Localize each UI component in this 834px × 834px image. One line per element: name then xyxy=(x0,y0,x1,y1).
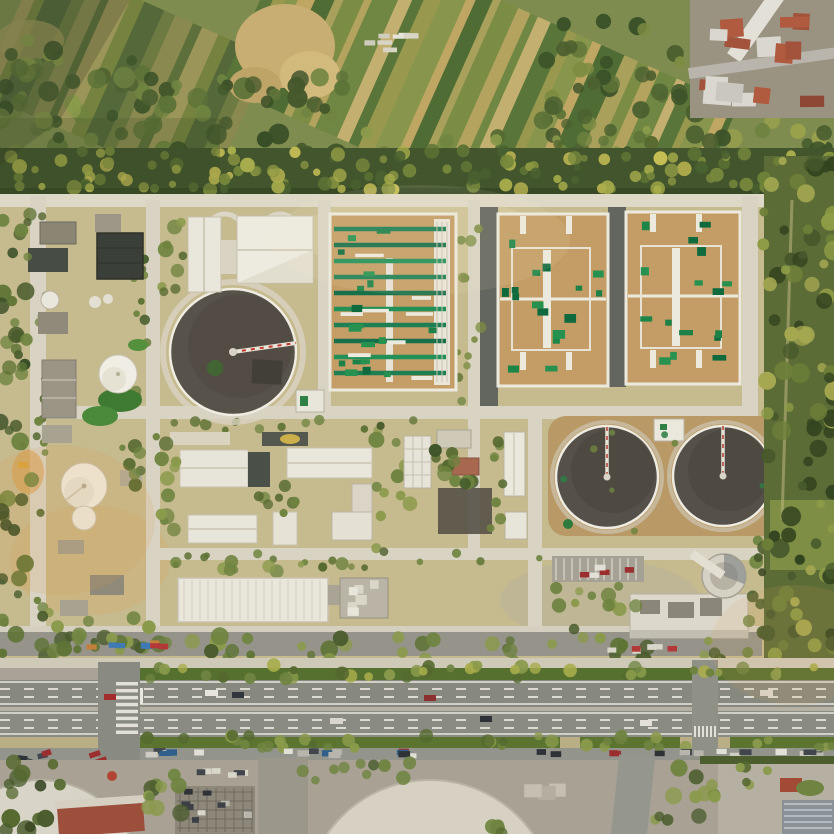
treeline-band-tree xyxy=(442,164,451,173)
clarifier-pad-east-tree xyxy=(609,430,615,436)
treeline-band-tree xyxy=(380,155,388,163)
plant-south-edge-unit xyxy=(109,642,117,647)
farmland-trees-tree xyxy=(261,96,274,109)
left-utility-zone-shape xyxy=(60,600,88,616)
farmland-trees-tree xyxy=(142,89,159,106)
farmland-trees-tree xyxy=(245,76,262,93)
plant-roads-shape xyxy=(608,207,626,387)
boulevard-zebra-bar xyxy=(714,726,716,737)
south-urban-strip-unit xyxy=(236,770,245,775)
boulevard-unit xyxy=(680,750,690,755)
mid-west-buildings-tree xyxy=(225,555,239,569)
aeration-basin-central-unit xyxy=(387,340,406,344)
square-basin-west-unit xyxy=(512,287,519,293)
plant-south-edge-tree xyxy=(426,632,441,647)
mid-west-buildings-tree xyxy=(280,509,288,517)
treeline-band-tree xyxy=(240,158,255,173)
east-tree-strip-tree xyxy=(761,407,774,420)
treeline-band-tree xyxy=(468,171,482,185)
boulevard-tree xyxy=(240,740,249,749)
east-tree-strip-tree xyxy=(784,327,799,342)
treeline-band-tree xyxy=(621,152,631,162)
left-utility-zone-shape xyxy=(102,367,126,391)
plant-road-trees-tree xyxy=(464,352,472,360)
boulevard-tree xyxy=(513,674,522,683)
square-basin-east-unit xyxy=(642,222,650,231)
farmland-trees-tree xyxy=(561,119,572,130)
center-cluster-shape xyxy=(438,488,492,534)
boulevard-tree xyxy=(227,730,238,741)
plant-road-trees-tree xyxy=(457,397,466,406)
farmland-trees-tree xyxy=(573,83,584,94)
mid-west-buildings-tree xyxy=(403,496,418,511)
plant-south-edge-tree xyxy=(333,631,349,647)
south-urban-strip-tree xyxy=(54,779,66,791)
center-cluster-tree xyxy=(491,497,501,507)
treeline-band-tree xyxy=(668,177,676,185)
boulevard-tree xyxy=(764,736,773,745)
farmland-trees-tree xyxy=(643,126,652,135)
treeline-band-tree xyxy=(668,152,678,162)
plant-roads-shape xyxy=(528,418,542,632)
south-urban-strip-tree xyxy=(662,814,674,826)
south-urban-strip-tree xyxy=(311,776,320,785)
plant-south-edge-tree xyxy=(392,631,404,643)
plant-south-edge-unit xyxy=(647,644,657,650)
east-tree-strip-tree xyxy=(761,449,775,463)
east-tree-strip-tree xyxy=(759,208,768,217)
farmland-trees-tree xyxy=(87,70,106,89)
south-urban-strip-unit xyxy=(524,784,542,797)
farmland-trees-tree xyxy=(218,84,229,95)
left-utility-zone-shape xyxy=(40,222,76,244)
treeline-band-tree xyxy=(721,150,730,159)
boulevard-tree xyxy=(534,732,542,740)
mid-west-buildings-tree xyxy=(298,561,304,567)
left-utility-zone-tree xyxy=(17,362,27,372)
southeast-offices-unit xyxy=(625,567,634,573)
farmland-trees-tree xyxy=(651,83,668,100)
southeast-offices-tree xyxy=(629,599,642,612)
boulevard-unit xyxy=(739,749,751,755)
farmland-greenhouses-unit xyxy=(378,34,389,39)
treeline-band-tree xyxy=(313,169,320,176)
farmland-trees-tree xyxy=(582,63,594,75)
treeline-band-tree xyxy=(394,151,405,162)
southeast-offices-unit xyxy=(595,565,606,571)
farmland-trees-tree xyxy=(564,40,577,53)
plant-road-trees-tree xyxy=(463,362,471,370)
mid-west-buildings-tree xyxy=(262,560,275,573)
south-urban-strip-tree xyxy=(689,790,702,803)
south-urban-strip-shape xyxy=(107,771,117,781)
east-tree-strip-tree xyxy=(781,506,801,526)
plant-road-trees-tree xyxy=(200,553,208,561)
south-urban-strip-tree xyxy=(48,759,59,770)
boulevard-tree xyxy=(499,738,508,747)
boulevard-zebra-bar xyxy=(702,726,704,737)
south-urban-strip-tree xyxy=(356,759,366,769)
aeration-basin-central-unit xyxy=(345,369,357,376)
left-utility-zone-shape xyxy=(116,372,120,376)
farmland-trees-tree xyxy=(113,67,135,89)
south-urban-strip-tree xyxy=(378,759,391,772)
south-urban-strip-unit xyxy=(244,812,252,818)
east-tree-strip-tree xyxy=(798,481,807,490)
east-tree-strip-tree xyxy=(761,538,773,550)
plant-south-edge-tree xyxy=(73,645,81,653)
mid-west-buildings-tree xyxy=(392,438,401,447)
east-tree-strip-tree xyxy=(803,457,813,467)
left-utility-zone-tree xyxy=(17,282,35,300)
east-tree-strip-tree xyxy=(769,314,781,326)
boulevard-tree xyxy=(309,740,317,748)
village-top-right-unit xyxy=(785,41,801,59)
treeline-band-tree xyxy=(220,185,228,193)
treeline-band-tree xyxy=(318,177,332,191)
south-urban-strip-tree xyxy=(329,764,339,774)
farmland-trees-tree xyxy=(577,132,592,147)
boulevard-unit xyxy=(146,752,158,758)
east-tree-strip-tree xyxy=(774,362,793,381)
square-basin-west-unit xyxy=(537,308,548,315)
mid-west-buildings-tree xyxy=(361,564,368,571)
plant-road-trees-tree xyxy=(34,597,41,604)
farmland-trees-tree xyxy=(632,101,649,118)
mid-west-buildings-tree xyxy=(159,436,173,450)
south-urban-strip-tree xyxy=(689,769,704,784)
treeline-band-tree xyxy=(331,147,345,161)
square-basin-west-shape xyxy=(520,352,526,370)
mid-west-buildings-shape xyxy=(280,434,300,444)
left-utility-zone-shape xyxy=(38,312,68,334)
left-utility-zone-shape xyxy=(128,339,148,351)
plant-south-edge-tree xyxy=(211,627,229,645)
left-utility-zone-shape xyxy=(95,214,121,232)
plant-south-edge-tree xyxy=(185,634,200,649)
village-top-right-unit xyxy=(800,96,824,108)
north-buildings-tree xyxy=(159,287,168,296)
left-utility-zone-tree xyxy=(7,248,18,259)
farmland-trees-tree xyxy=(311,68,329,86)
south-urban-strip-unit xyxy=(203,791,212,796)
boulevard-tree xyxy=(580,739,593,752)
treeline-band-tree xyxy=(457,144,470,157)
left-utility-zone-tree xyxy=(14,350,23,359)
boulevard-tree xyxy=(257,742,267,752)
farmland-trees-tree xyxy=(596,14,611,29)
center-cluster-tree xyxy=(493,436,504,447)
south-urban-strip-tree xyxy=(155,781,167,793)
mid-west-buildings-tree xyxy=(348,563,355,570)
square-basin-west-unit xyxy=(593,271,604,278)
boulevard-unit xyxy=(804,750,817,756)
center-cluster-tree xyxy=(449,475,461,487)
aeration-basin-central-unit xyxy=(406,312,433,316)
farmland-trees-tree xyxy=(336,71,348,83)
farmland-trees-tree xyxy=(600,56,613,69)
mid-west-buildings-tree xyxy=(167,523,181,537)
east-tree-strip-tree xyxy=(797,184,815,202)
boulevard-zebra-bar xyxy=(116,696,138,699)
treeline-band-tree xyxy=(571,176,579,184)
plant-south-edge-tree xyxy=(225,644,239,658)
plant-south-edge-tree xyxy=(34,638,49,653)
square-basin-east-unit xyxy=(713,288,724,295)
left-utility-zone-tree xyxy=(83,616,94,627)
clarifier-pad-east-shape xyxy=(688,429,770,511)
plant-road-trees-tree xyxy=(409,416,417,424)
left-utility-zone-tree xyxy=(7,296,17,306)
treeline-band-tree xyxy=(568,151,582,165)
boulevard-tree xyxy=(342,734,355,747)
boulevard-tree xyxy=(267,658,281,672)
aeration-basin-central-unit xyxy=(379,337,386,344)
treeline-band-tree xyxy=(267,165,280,178)
south-urban-strip-tree xyxy=(171,778,187,794)
center-cluster-tree xyxy=(448,455,461,468)
farmland-trees-tree xyxy=(816,125,832,141)
village-top-right-unit xyxy=(753,87,771,105)
aeration-basin-central-unit xyxy=(429,328,438,334)
boulevard-tree xyxy=(335,667,349,681)
boulevard-shape xyxy=(140,688,143,704)
boulevard-zebra-bar xyxy=(116,682,138,685)
farmland-trees-tree xyxy=(577,109,592,124)
plant-road-trees-tree xyxy=(190,416,201,427)
clarifier-pad-east xyxy=(548,416,780,536)
mid-west-buildings-tree xyxy=(391,469,405,483)
treeline-band-tree xyxy=(403,164,417,178)
treeline-band-tree xyxy=(647,172,655,180)
plant-south-edge-tree xyxy=(297,642,306,651)
south-urban-strip-unit xyxy=(218,802,226,807)
treeline-band-tree xyxy=(424,144,439,159)
left-utility-zone-tree xyxy=(20,333,32,345)
square-basin-west-unit xyxy=(532,302,544,309)
farmland-trees-tree xyxy=(675,56,686,67)
boulevard-tree xyxy=(178,664,188,674)
mid-west-buildings-tree xyxy=(380,547,389,556)
treeline-band-tree xyxy=(461,161,472,172)
boulevard-unit xyxy=(717,749,727,754)
southeast-offices-tree xyxy=(754,553,763,562)
farmland-trees-tree xyxy=(144,72,158,86)
east-tree-strip-tree xyxy=(805,277,820,292)
boulevard-tree xyxy=(563,664,577,678)
boulevard-tree xyxy=(473,661,483,671)
plant-road-trees-tree xyxy=(33,432,41,440)
south-urban-strip-tree xyxy=(141,800,156,815)
treeline-band-tree xyxy=(558,182,567,191)
farmland-trees-tree xyxy=(686,125,704,143)
aeration-basin-central-unit xyxy=(384,372,391,377)
southeast-offices-shape xyxy=(700,598,722,616)
east-tree-strip-tree xyxy=(795,555,805,565)
boulevard-tree xyxy=(419,667,428,676)
left-utility-zone-tree xyxy=(24,253,32,261)
boulevard-unit xyxy=(284,749,293,754)
farmland-trees-tree xyxy=(538,52,555,69)
boulevard-tree xyxy=(178,733,189,744)
square-basin-east-shape xyxy=(650,350,656,368)
north-buildings-tree xyxy=(179,252,188,261)
treeline-band-tree xyxy=(499,179,512,192)
left-utility-zone-tree xyxy=(10,318,19,327)
treeline-band-tree xyxy=(300,161,308,169)
east-tree-strip-tree xyxy=(806,154,823,171)
plant-south-edge-tree xyxy=(503,643,517,657)
boulevard-unit xyxy=(166,749,177,755)
south-urban-strip-tree xyxy=(362,770,371,779)
plant-south-edge-tree xyxy=(242,633,253,644)
east-tree-strip-tree xyxy=(787,572,796,581)
boulevard-zebra-bar xyxy=(710,726,712,737)
left-utility-zone-tree xyxy=(14,224,28,238)
farmland-trees-tree xyxy=(637,23,651,37)
aeration-basin-central-unit xyxy=(339,361,346,367)
mid-west-buildings-tree xyxy=(161,488,175,502)
treeline-band-tree xyxy=(228,154,240,166)
clarifier-pad-east-tree xyxy=(609,488,614,493)
south-urban-strip-shape xyxy=(700,756,834,764)
boulevard-unit xyxy=(776,749,787,755)
southeast-offices-tree xyxy=(552,598,566,612)
farmland-trees-tree xyxy=(587,77,600,90)
square-basin-east-unit xyxy=(713,355,727,361)
farmland-trees-tree xyxy=(553,140,562,149)
center-cluster-tree xyxy=(487,524,495,532)
south-urban-strip-unit xyxy=(198,810,206,815)
boulevard-zebra-bar xyxy=(116,689,138,692)
mid-west-buildings-tree xyxy=(170,462,180,472)
square-basin-west-unit xyxy=(512,293,519,300)
boulevard-unit xyxy=(551,751,562,757)
clarifier-pad-east-shape xyxy=(563,519,573,529)
treeline-band-tree xyxy=(530,168,541,179)
left-utility-zone-shape xyxy=(103,294,113,304)
boulevard-tree xyxy=(644,740,654,750)
farmland-trees-tree xyxy=(671,89,688,106)
square-basin-west-unit xyxy=(545,366,557,372)
boulevard-tree xyxy=(603,737,611,745)
boulevard-tree xyxy=(201,670,212,681)
boulevard-tree xyxy=(419,729,433,743)
plant-south-edge-unit xyxy=(668,646,678,652)
east-tree-strip-tree xyxy=(779,157,787,165)
boulevard-unit xyxy=(309,748,319,754)
treeline-band-tree xyxy=(706,173,716,183)
plant-road-trees-tree xyxy=(536,555,542,561)
east-tree-strip-tree xyxy=(781,528,796,543)
warehouse-row-shape xyxy=(328,585,340,605)
mid-west-buildings-tree xyxy=(336,557,349,570)
plant-south-edge-tree xyxy=(106,633,117,644)
center-cluster-shape xyxy=(505,512,527,539)
left-utility-zone-shape xyxy=(42,425,72,443)
farmland-trees-tree xyxy=(490,134,502,146)
warehouse-row xyxy=(178,578,388,622)
boulevard-shape xyxy=(104,694,116,700)
plant-road-trees-tree xyxy=(253,549,262,558)
boulevard-tree xyxy=(141,732,154,745)
treeline-band-tree xyxy=(289,147,300,158)
square-basin-east-shape xyxy=(650,214,656,232)
square-basin-east-unit xyxy=(688,237,698,244)
plant-road-trees-tree xyxy=(277,423,285,431)
square-basin-east-unit xyxy=(659,357,670,364)
plant-south-edge-tree xyxy=(8,626,25,643)
center-cluster-tree xyxy=(495,513,506,524)
farmland-trees-tree xyxy=(790,124,805,139)
mid-west-buildings-tree xyxy=(279,480,291,492)
south-urban-strip-unit xyxy=(228,772,237,778)
left-utility-zone-tree xyxy=(51,620,64,633)
farmland-trees-tree xyxy=(557,17,571,31)
farmland-trees-tree xyxy=(257,131,273,147)
east-tree-strip-tree xyxy=(758,372,776,390)
left-utility-zone-tree xyxy=(127,611,141,625)
farmland-trees-tree xyxy=(171,80,182,91)
mid-west-buildings-tree xyxy=(290,497,300,507)
clarifier-pad-east-tree xyxy=(560,476,567,483)
farmland-trees-tree xyxy=(439,134,453,148)
mid-west-buildings-tree xyxy=(254,491,264,501)
mid-west-buildings-tree xyxy=(372,482,382,492)
plant-road-trees-tree xyxy=(452,549,461,558)
boulevard-shape xyxy=(480,716,492,722)
boulevard-unit xyxy=(298,750,310,756)
east-tree-strip-tree xyxy=(758,568,766,576)
mid-west-buildings-shape xyxy=(332,512,372,540)
clarifier-large-west-shape xyxy=(229,348,237,356)
boulevard-tree xyxy=(481,734,495,748)
square-basin-west-unit xyxy=(508,366,519,373)
boulevard-unit xyxy=(655,751,665,757)
south-urban-strip-tree xyxy=(665,787,682,804)
south-urban-strip-unit xyxy=(192,817,199,823)
plant-south-edge-tree xyxy=(72,628,87,643)
treeline-band-tree xyxy=(271,180,284,193)
east-tree-strip-tree xyxy=(816,293,832,309)
square-basin-west-unit xyxy=(596,290,602,296)
boulevard-zebra-bar xyxy=(116,710,138,713)
square-basin-west-shape xyxy=(566,352,572,370)
left-utility-zone-tree xyxy=(153,433,160,440)
farmland-greenhouses-unit xyxy=(364,40,375,45)
south-urban-strip-tree xyxy=(4,779,15,790)
aeration-basin-central-unit xyxy=(349,325,362,332)
clarifier-pad-east-shape xyxy=(720,473,727,480)
south-urban-strip-shape xyxy=(782,800,834,834)
plant-road-trees-tree xyxy=(328,557,336,565)
farmland-trees-tree xyxy=(702,133,719,150)
farmland-trees-tree xyxy=(361,127,373,139)
east-tree-strip-tree xyxy=(763,277,777,291)
farmland-greenhouses-unit xyxy=(383,48,397,53)
treeline-band-tree xyxy=(729,180,738,189)
aeration-basin-central-unit xyxy=(412,296,431,300)
boulevard-unit xyxy=(328,752,340,758)
aerial-photo-svg xyxy=(0,0,834,834)
treeline-band-tree xyxy=(738,147,751,160)
square-basin-east-unit xyxy=(722,281,732,286)
plant-road-trees-tree xyxy=(171,419,179,427)
plant-south-edge-unit xyxy=(632,646,641,652)
boulevard-tree xyxy=(145,674,155,684)
left-utility-zone-tree xyxy=(2,360,16,374)
clarifier-large-west-shape xyxy=(207,360,223,376)
